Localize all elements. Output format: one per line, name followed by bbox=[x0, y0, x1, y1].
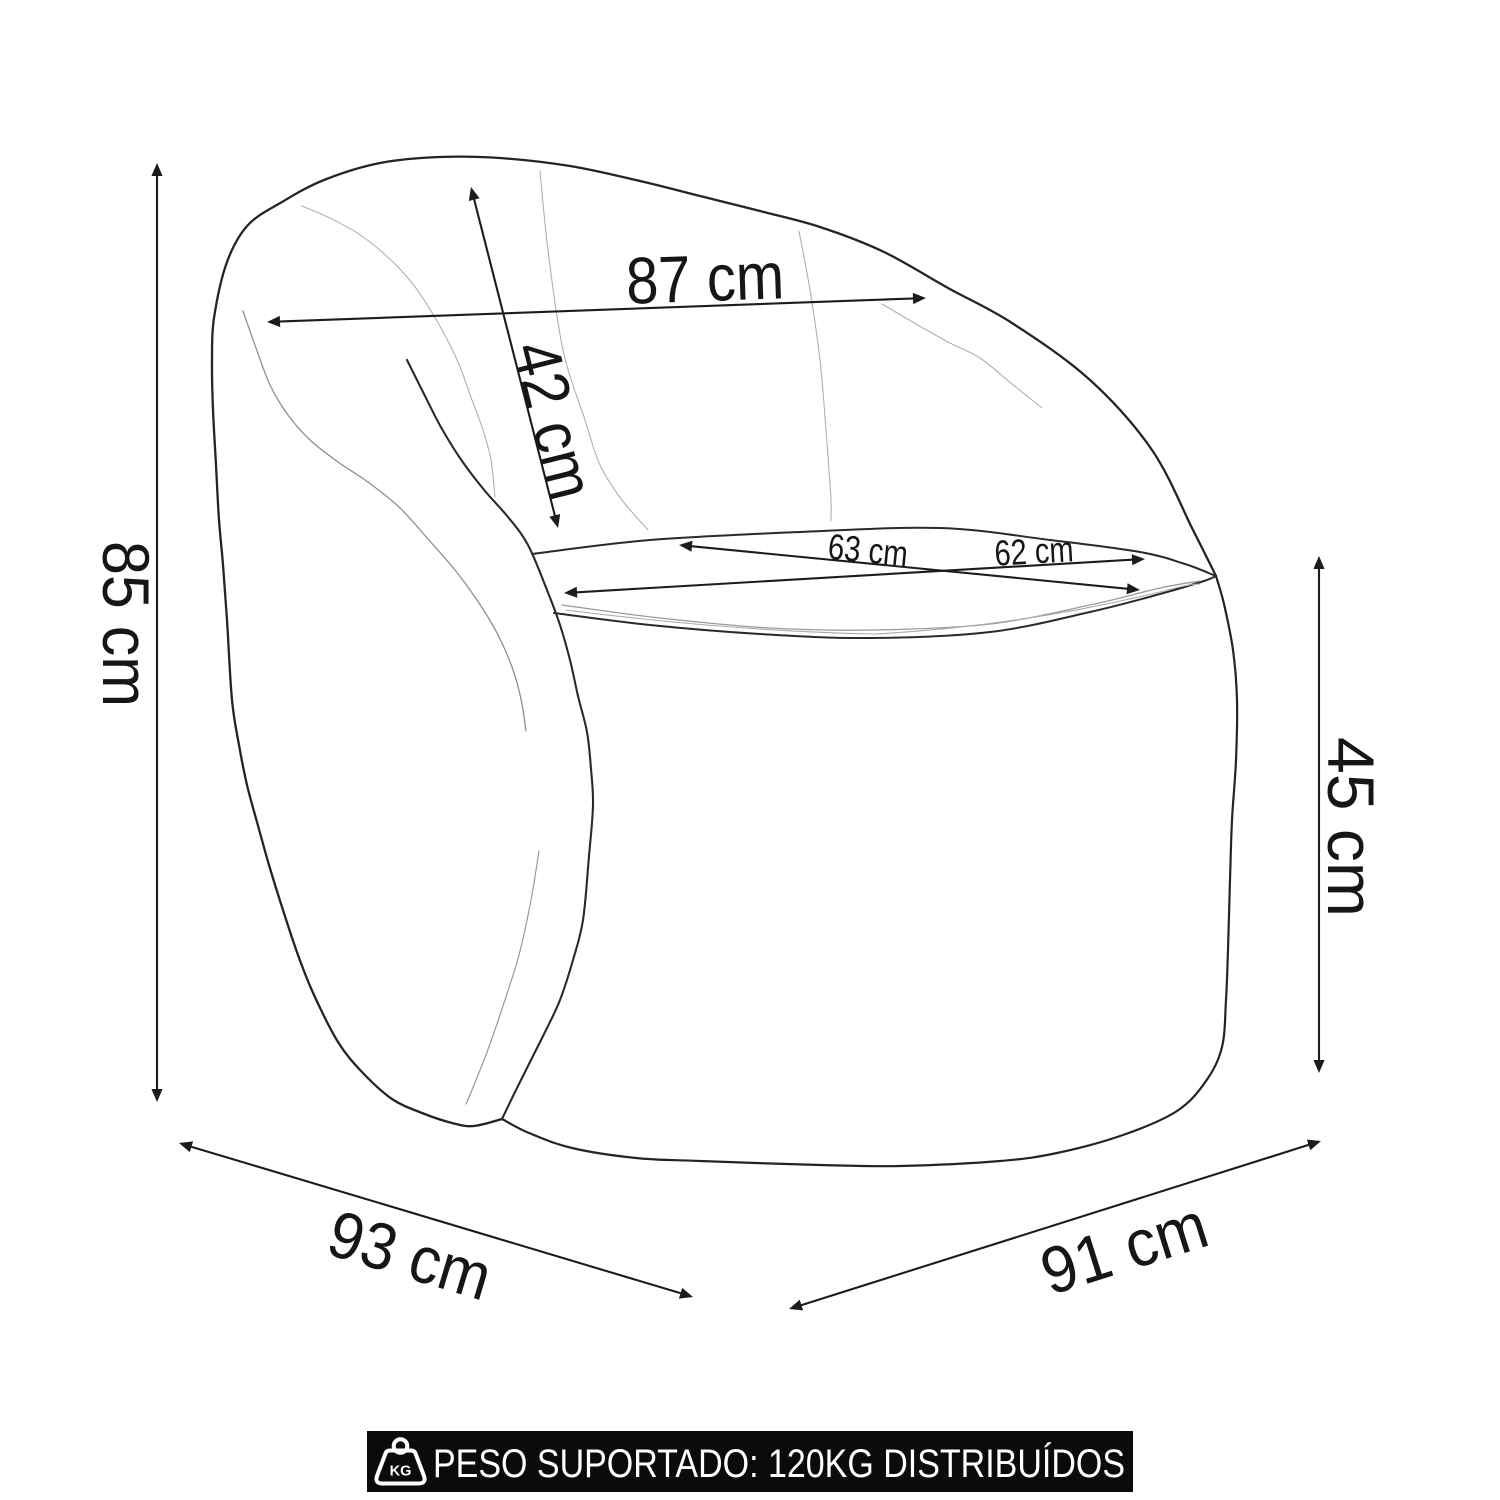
svg-text:63 cm: 63 cm bbox=[826, 526, 910, 575]
svg-text:62 cm: 62 cm bbox=[993, 528, 1074, 573]
svg-text:KG: KG bbox=[390, 1464, 412, 1480]
svg-text:PESO SUPORTADO: 120KG DISTRIBU: PESO SUPORTADO: 120KG DISTRIBUÍDOS bbox=[433, 1441, 1125, 1486]
svg-text:85 cm: 85 cm bbox=[89, 541, 163, 707]
svg-text:45 cm: 45 cm bbox=[1314, 737, 1388, 917]
svg-text:87 cm: 87 cm bbox=[625, 238, 785, 317]
